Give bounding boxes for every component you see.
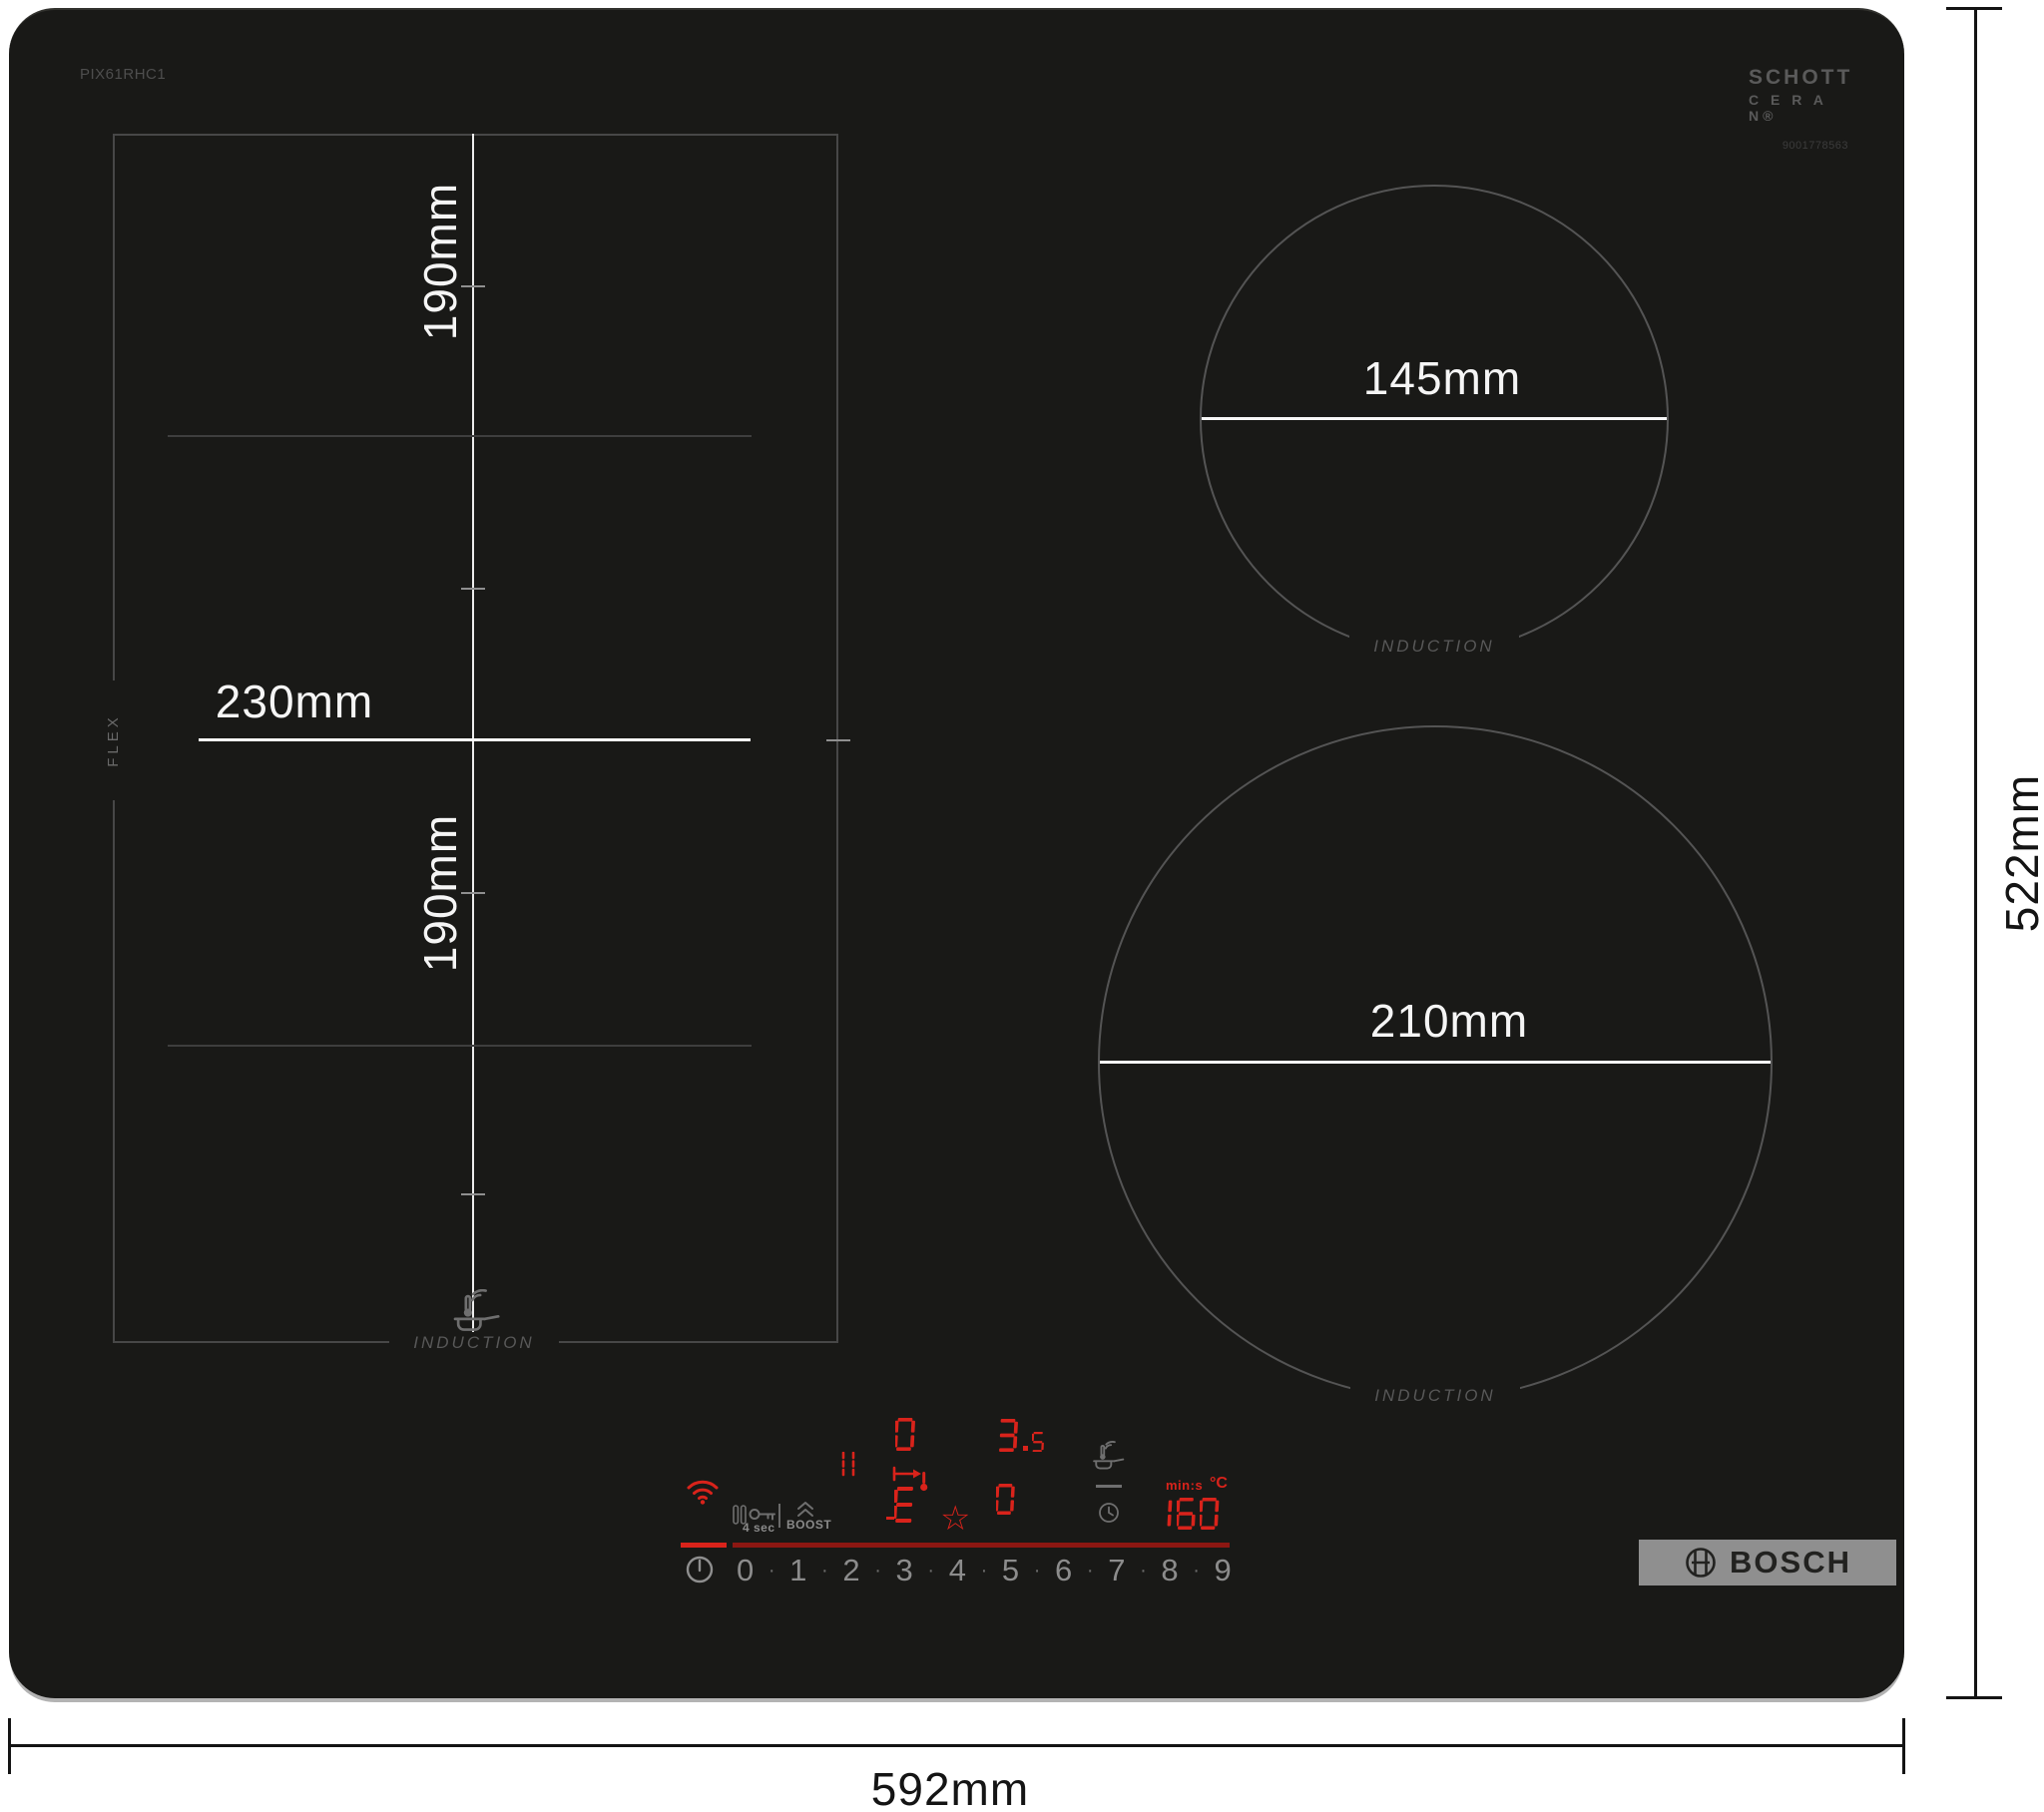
power-bar-track[interactable] bbox=[733, 1543, 1230, 1548]
height-dimension-tick bbox=[1946, 1696, 2002, 1699]
flex-zone-power-display bbox=[895, 1418, 915, 1451]
lower-width-dimension-label: 190mm bbox=[415, 783, 465, 1003]
power-level-2[interactable]: 2 bbox=[842, 1553, 859, 1588]
power-scale-dot: · bbox=[1034, 1560, 1041, 1583]
width-dimension-tick bbox=[8, 1718, 11, 1774]
boost-chevron-icon[interactable] bbox=[796, 1502, 814, 1518]
power-level-5[interactable]: 5 bbox=[1002, 1553, 1019, 1588]
flex-zone-center-line bbox=[472, 134, 474, 1349]
flex-zone-divider-lower bbox=[168, 1045, 752, 1047]
wifi-icon bbox=[686, 1477, 720, 1505]
temperature-unit-label: °C bbox=[1210, 1475, 1228, 1493]
glass-serial-number: 9001778563 bbox=[1749, 140, 1848, 152]
product-dimension-diagram: PIX61RHC1 SCHOTT C E R A N® 9001778563 2… bbox=[0, 0, 2044, 1812]
large-zone-diameter-label: 210mm bbox=[1329, 994, 1569, 1048]
small-zone-diameter-line bbox=[1202, 417, 1667, 420]
width-dimension-tick bbox=[1902, 1718, 1905, 1774]
favourite-star-icon[interactable]: ☆ bbox=[940, 1502, 970, 1536]
power-level-6[interactable]: 6 bbox=[1055, 1553, 1072, 1588]
flex-zone-aux-display bbox=[998, 1419, 1045, 1452]
glass-brand-logo: SCHOTT C E R A N® 9001778563 bbox=[1749, 66, 1848, 152]
timer-clock-icon[interactable] bbox=[1098, 1502, 1120, 1524]
width-dimension-line bbox=[9, 1744, 1904, 1747]
induction-pan-icon bbox=[451, 1289, 503, 1333]
control-divider bbox=[778, 1504, 780, 1528]
flex-center-tick bbox=[461, 1193, 485, 1195]
power-level-scale[interactable]: 0·1·2·3·4·5·6·7·8·9 bbox=[737, 1555, 1232, 1586]
height-dimension-tick bbox=[1946, 7, 2002, 10]
depth-dimension-label: 230mm bbox=[195, 675, 394, 728]
flex-zone-technology-label: INDUCTION bbox=[389, 1332, 559, 1354]
child-lock-label: 4 sec bbox=[743, 1521, 775, 1535]
ceran-logo-text: C E R A N® bbox=[1749, 92, 1848, 124]
power-button[interactable] bbox=[685, 1555, 715, 1585]
large-zone-diameter-line bbox=[1100, 1061, 1771, 1064]
move-zone-indicator-icon bbox=[839, 1452, 857, 1478]
sensor-level-dash bbox=[1096, 1485, 1122, 1488]
brand-name: BOSCH bbox=[1730, 1545, 1851, 1581]
power-level-4[interactable]: 4 bbox=[949, 1553, 966, 1588]
power-level-0[interactable]: 0 bbox=[737, 1553, 754, 1588]
brand-plate: BOSCH bbox=[1639, 1540, 1896, 1585]
depth-dimension-line bbox=[199, 738, 751, 741]
height-dimension-label: 522mm bbox=[1997, 753, 2044, 953]
power-scale-dot: · bbox=[1140, 1560, 1147, 1583]
power-level-1[interactable]: 1 bbox=[789, 1553, 806, 1588]
flex-center-tick bbox=[461, 588, 485, 590]
flex-zone-mode-display bbox=[894, 1487, 916, 1523]
power-level-7[interactable]: 7 bbox=[1108, 1553, 1125, 1588]
power-bar-active-segment bbox=[681, 1543, 727, 1548]
flex-edge-tick bbox=[826, 739, 850, 741]
flex-label: FLEX bbox=[99, 680, 129, 800]
flex-zone-divider-upper bbox=[168, 435, 752, 437]
timer-display bbox=[1153, 1498, 1220, 1530]
small-zone-diameter-label: 145mm bbox=[1322, 351, 1562, 405]
timer-unit-label: min:s bbox=[1166, 1478, 1203, 1493]
height-dimension-line bbox=[1974, 8, 1977, 1698]
power-scale-dot: · bbox=[874, 1560, 881, 1583]
power-scale-dot: · bbox=[981, 1560, 988, 1583]
power-scale-dot: · bbox=[1193, 1560, 1200, 1583]
model-number: PIX61RHC1 bbox=[80, 66, 166, 83]
width-dimension-label: 592mm bbox=[850, 1762, 1050, 1812]
cooking-sensor-pan-icon bbox=[1092, 1441, 1126, 1471]
right-zone-power-display bbox=[996, 1484, 1015, 1515]
power-level-9[interactable]: 9 bbox=[1215, 1553, 1232, 1588]
schott-logo-text: SCHOTT bbox=[1749, 66, 1848, 90]
power-scale-dot: · bbox=[768, 1560, 775, 1583]
power-scale-dot: · bbox=[821, 1560, 828, 1583]
large-zone-technology-label: INDUCTION bbox=[1350, 1385, 1520, 1407]
power-level-3[interactable]: 3 bbox=[896, 1553, 913, 1588]
power-scale-dot: · bbox=[927, 1560, 934, 1583]
upper-width-dimension-label: 190mm bbox=[415, 152, 465, 371]
bosch-emblem-icon bbox=[1684, 1546, 1718, 1580]
mode-display-dash bbox=[886, 1517, 894, 1520]
power-level-8[interactable]: 8 bbox=[1161, 1553, 1178, 1588]
power-scale-dot: · bbox=[1087, 1560, 1094, 1583]
boost-label: BOOST bbox=[786, 1518, 831, 1532]
small-zone-technology-label: INDUCTION bbox=[1349, 636, 1519, 658]
